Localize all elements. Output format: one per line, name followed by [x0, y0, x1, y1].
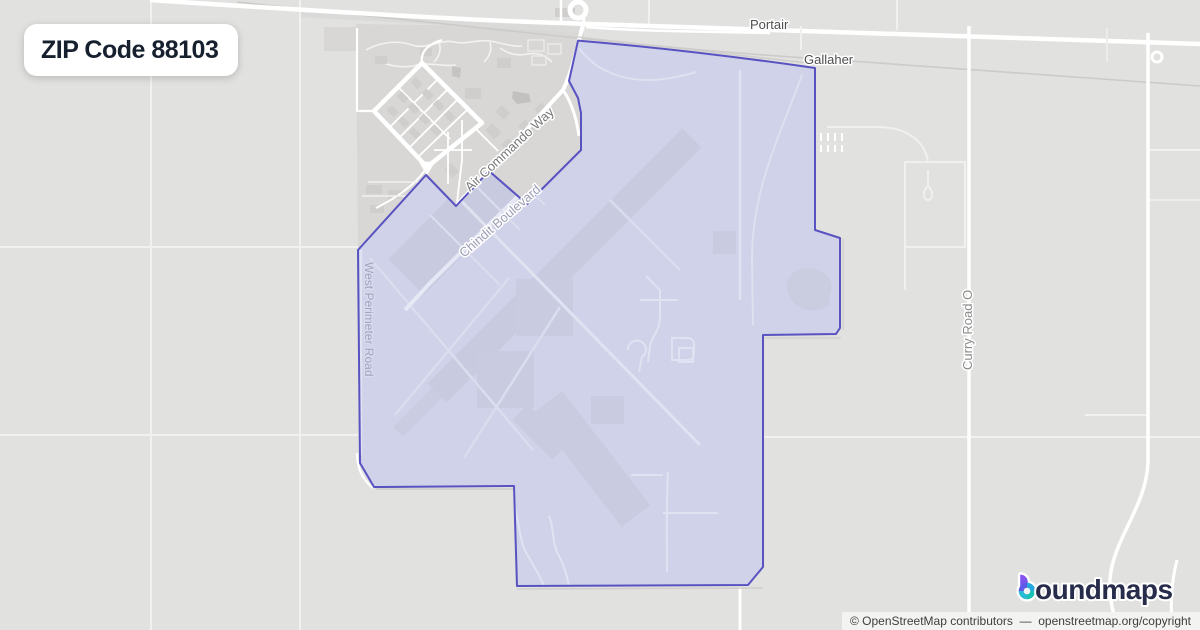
svg-text:Gallaher: Gallaher	[804, 52, 854, 67]
svg-text:oundmaps: oundmaps	[1035, 574, 1173, 605]
svg-text:Curry Road O: Curry Road O	[960, 290, 975, 370]
svg-text:Portair: Portair	[750, 17, 789, 32]
svg-text:West Perimeter Road: West Perimeter Road	[362, 262, 376, 377]
